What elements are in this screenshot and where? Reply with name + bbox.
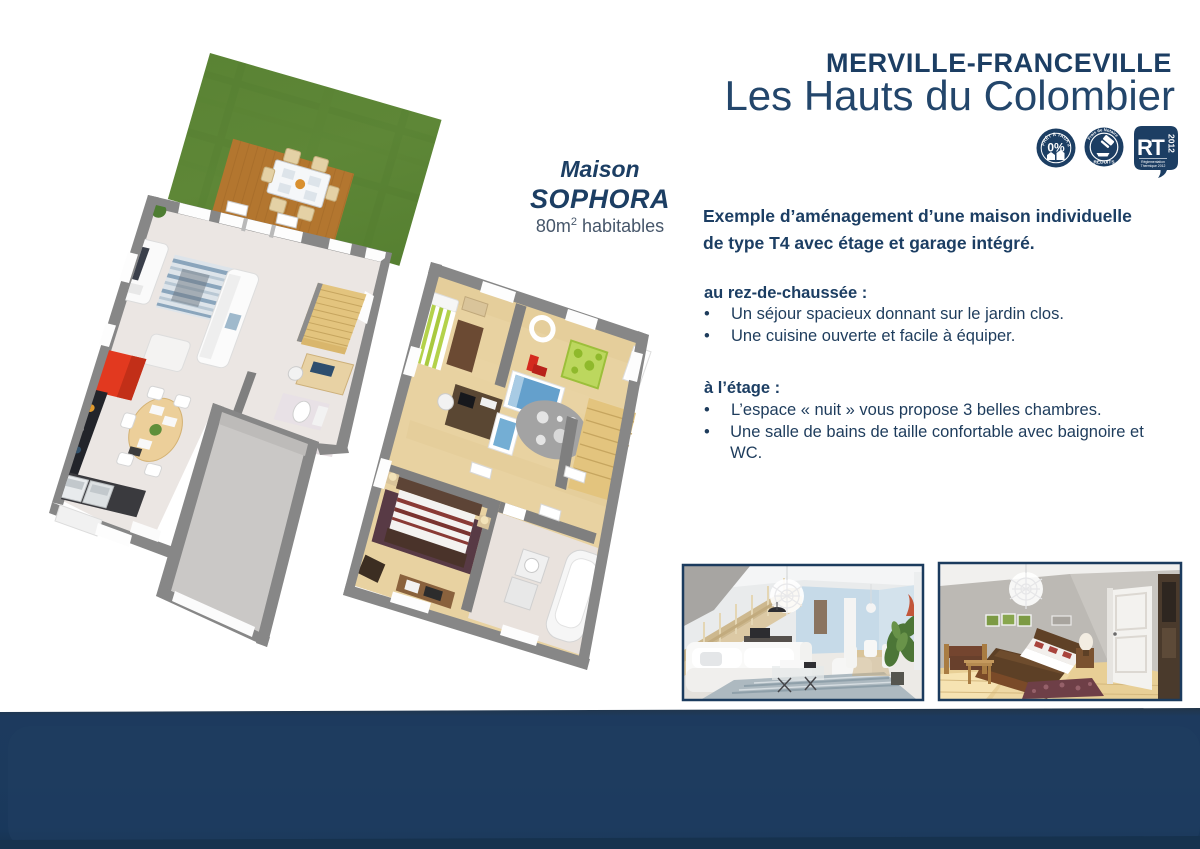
svg-text:2012: 2012 bbox=[1167, 134, 1177, 153]
svg-text:RT: RT bbox=[1137, 135, 1165, 160]
svg-text:Thermique 2012: Thermique 2012 bbox=[1141, 164, 1166, 168]
